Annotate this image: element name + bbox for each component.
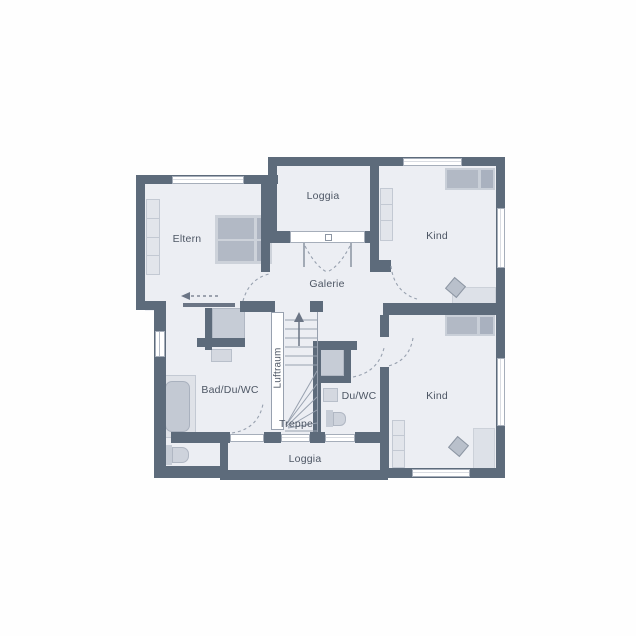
wall-segment xyxy=(154,301,166,478)
bed-pillow xyxy=(481,170,493,188)
shower xyxy=(318,347,344,376)
wall-segment xyxy=(264,432,281,443)
desk xyxy=(473,428,495,470)
label-loggia-top: Loggia xyxy=(307,190,340,202)
window xyxy=(497,358,505,426)
door-bad xyxy=(230,434,264,442)
wall-segment xyxy=(365,231,379,243)
wall-segment xyxy=(380,367,389,478)
wardrobe xyxy=(146,199,160,275)
shelf xyxy=(392,420,405,468)
label-treppe: Treppe xyxy=(279,418,313,430)
wall-segment xyxy=(261,175,270,272)
window xyxy=(403,158,462,166)
wall-segment xyxy=(268,157,505,166)
wall-segment xyxy=(496,157,505,478)
wall-segment xyxy=(313,341,321,433)
wall-segment xyxy=(220,470,388,480)
label-duwc: Du/WC xyxy=(342,390,377,402)
wall-segment xyxy=(380,315,389,337)
wall-segment xyxy=(383,303,505,315)
french-door-loggia xyxy=(290,231,365,243)
label-loggia-bottom: Loggia xyxy=(289,453,322,465)
sink xyxy=(323,388,338,402)
window xyxy=(325,434,355,442)
bed-mattress xyxy=(218,218,254,239)
sink xyxy=(211,349,232,362)
window xyxy=(497,208,505,268)
wall-segment xyxy=(277,231,290,243)
wall-segment xyxy=(370,157,379,272)
wall-segment xyxy=(315,376,351,383)
label-luftraum: Luftraum xyxy=(273,347,284,388)
wall-segment xyxy=(240,301,275,312)
wall-segment xyxy=(379,260,391,272)
toilet-bowl xyxy=(333,412,346,426)
bed-mattress xyxy=(218,241,254,261)
label-kind-bottom: Kind xyxy=(426,390,448,402)
toilet xyxy=(326,410,333,427)
window xyxy=(412,469,470,477)
window xyxy=(281,434,310,442)
wall-segment xyxy=(197,338,245,347)
toilet-bowl xyxy=(172,447,189,463)
bathtub-basin xyxy=(165,381,190,432)
bed-mattress xyxy=(447,317,477,334)
bed-pillow xyxy=(480,317,493,334)
bed-mattress xyxy=(447,170,478,188)
label-eltern: Eltern xyxy=(173,233,202,245)
wall-segment xyxy=(310,432,325,443)
label-kind-top: Kind xyxy=(426,230,448,242)
wall-segment xyxy=(310,301,323,312)
wall-segment xyxy=(154,466,228,478)
sliding-door-panel xyxy=(183,303,235,307)
floor-plan: Eltern Loggia Kind Galerie Luftraum Bad/… xyxy=(0,0,636,636)
window xyxy=(172,176,244,184)
wall-segment xyxy=(136,175,145,310)
shower xyxy=(212,308,245,339)
window xyxy=(155,331,165,357)
shelf xyxy=(380,188,393,241)
door-handle-symbol xyxy=(325,234,332,241)
label-bad: Bad/Du/WC xyxy=(201,384,258,396)
label-galerie: Galerie xyxy=(309,278,344,290)
